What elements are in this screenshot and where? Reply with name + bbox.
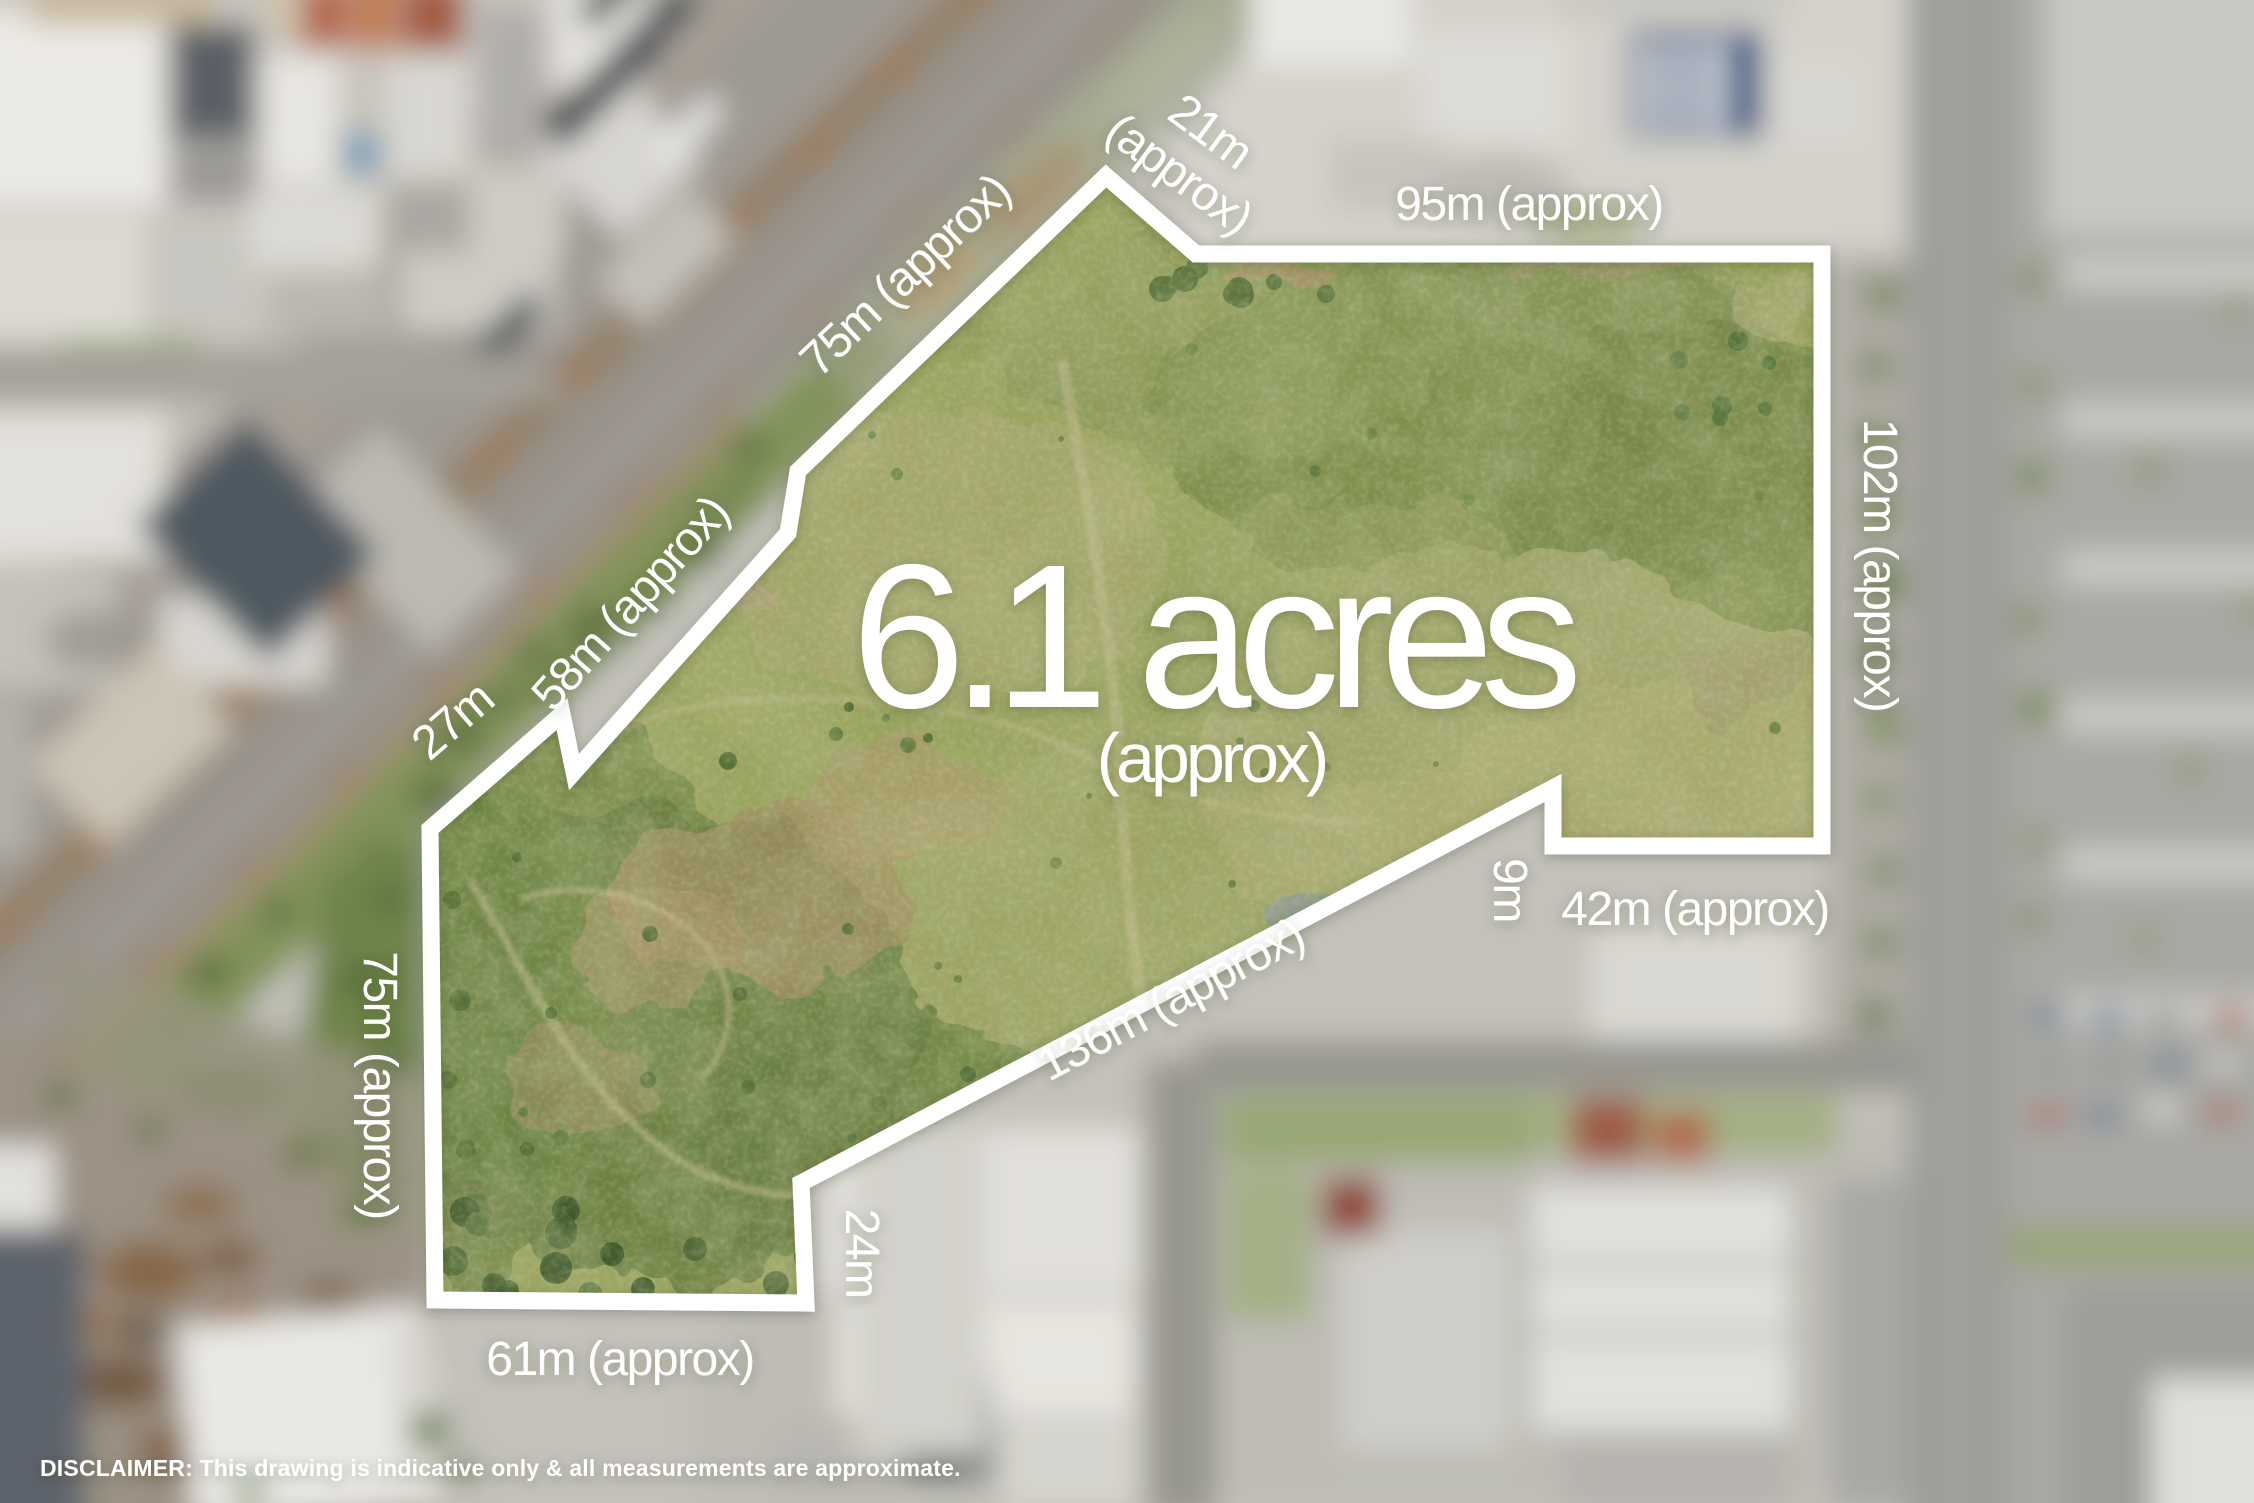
- svg-text:(approx): (approx): [1097, 719, 1326, 797]
- svg-text:24m: 24m: [835, 1209, 888, 1298]
- svg-text:61m (approx): 61m (approx): [486, 1333, 753, 1386]
- svg-text:42m (approx): 42m (approx): [1561, 883, 1828, 936]
- svg-text:DISCLAIMER: This drawing is in: DISCLAIMER: This drawing is indicative o…: [40, 1455, 961, 1481]
- svg-text:95m (approx): 95m (approx): [1395, 178, 1662, 231]
- svg-text:9m: 9m: [1483, 858, 1536, 922]
- svg-text:75m (approx): 75m (approx): [353, 951, 406, 1218]
- svg-text:6.1 acres: 6.1 acres: [851, 522, 1576, 751]
- svg-text:102m (approx): 102m (approx): [1853, 419, 1906, 712]
